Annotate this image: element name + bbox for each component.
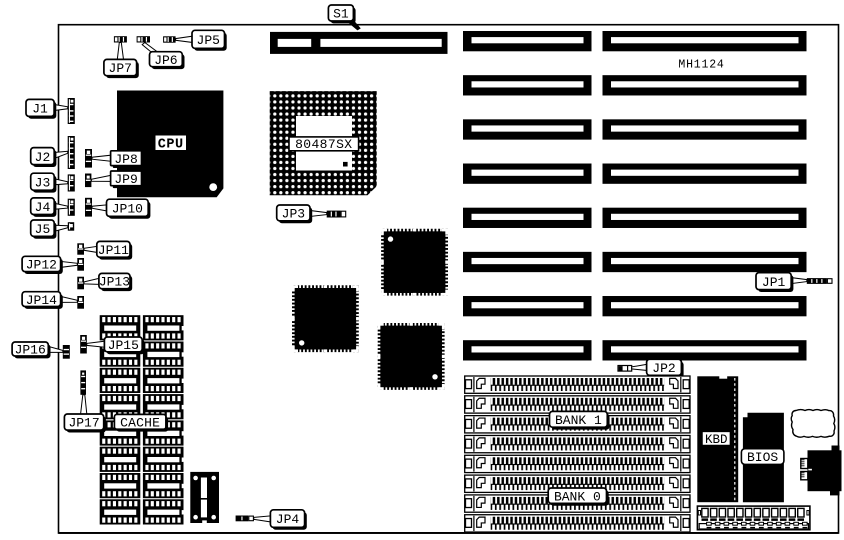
svg-text:BANK 0: BANK 0 xyxy=(554,489,601,504)
svg-text:JP14: JP14 xyxy=(26,293,57,308)
svg-text:JP10: JP10 xyxy=(112,201,143,216)
svg-text:JP1: JP1 xyxy=(762,275,786,290)
svg-text:JP13: JP13 xyxy=(99,275,130,290)
svg-text:BIOS: BIOS xyxy=(747,450,778,465)
svg-text:JP15: JP15 xyxy=(108,338,139,353)
svg-text:KBD: KBD xyxy=(705,433,728,447)
svg-text:80487SX: 80487SX xyxy=(295,137,352,152)
svg-text:JP2: JP2 xyxy=(652,361,675,376)
svg-text:S1: S1 xyxy=(333,7,349,22)
svg-text:J1: J1 xyxy=(32,102,48,117)
svg-text:J2: J2 xyxy=(35,150,51,165)
svg-text:JP17: JP17 xyxy=(68,416,99,431)
svg-text:BANK 1: BANK 1 xyxy=(555,413,602,428)
svg-text:J3: J3 xyxy=(35,175,51,190)
svg-text:JP8: JP8 xyxy=(114,152,137,167)
svg-text:JP11: JP11 xyxy=(98,243,129,258)
svg-text:JP9: JP9 xyxy=(114,172,137,187)
svg-text:JP4: JP4 xyxy=(276,512,300,527)
svg-text:CACHE: CACHE xyxy=(120,415,160,430)
svg-text:JP16: JP16 xyxy=(15,343,46,358)
svg-text:JP12: JP12 xyxy=(26,258,57,273)
svg-text:JP5: JP5 xyxy=(197,33,220,48)
svg-text:J4: J4 xyxy=(35,200,51,215)
svg-text:MH1124: MH1124 xyxy=(678,58,724,71)
svg-text:J5: J5 xyxy=(35,222,51,237)
svg-text:JP3: JP3 xyxy=(282,207,305,222)
svg-text:JP7: JP7 xyxy=(109,61,132,76)
svg-text:CPU: CPU xyxy=(158,138,184,153)
svg-text:JP6: JP6 xyxy=(154,53,177,68)
